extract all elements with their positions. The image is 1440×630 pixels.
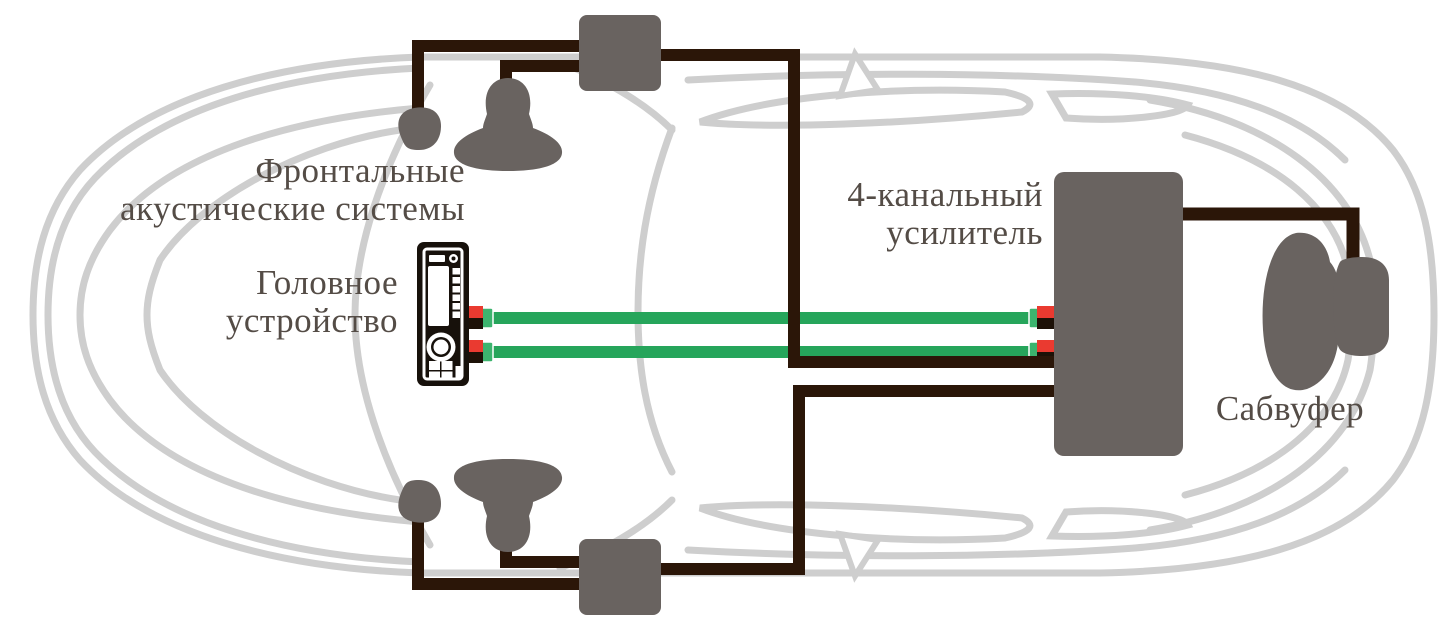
rca-cables: [463, 306, 1057, 363]
head-unit-display: [428, 266, 449, 326]
head-unit-label: Головное устройство: [226, 264, 398, 340]
crossover-icon-top: [579, 15, 661, 91]
rca-cable-1: [492, 312, 1032, 324]
front-speakers-label: Фронтальные акустические системы: [120, 152, 465, 228]
head-unit-label-line2: устройство: [226, 302, 398, 340]
subwoofer-magnet: [1333, 257, 1389, 356]
tweeter-icon-bottom: [398, 480, 441, 523]
head-unit-knob: [434, 340, 449, 355]
roofline-bottom: [688, 548, 1135, 556]
front-speakers-label-line1: Фронтальные: [120, 152, 465, 190]
midrange-speaker-icon-bottom: [454, 459, 562, 552]
windshield-arc: [638, 128, 672, 472]
amplifier-label-line1: 4-канальный: [847, 176, 1043, 214]
head-unit-label-line1: Головное: [226, 264, 398, 302]
head-unit-eject-button: [456, 366, 463, 379]
wiring-diagram: Фронтальные акустические системы Головно…: [0, 0, 1440, 630]
midrange-speaker-icon-top: [454, 78, 562, 171]
subwoofer-label-line1: Сабвуфер: [1140, 390, 1440, 428]
subwoofer-cone: [1263, 233, 1343, 390]
front-speakers-label-line2: акустические системы: [120, 190, 465, 228]
crossover-icon-bottom: [579, 539, 661, 615]
amplifier-label-line2: усилитель: [847, 214, 1043, 252]
diagram-canvas: [0, 0, 1440, 630]
side-window-front-bottom: [700, 505, 1030, 540]
head-unit-power-dot: [452, 257, 456, 261]
roofline-top: [688, 74, 1135, 82]
subwoofer-label: Сабвуфер: [1140, 390, 1440, 428]
side-window-front-top: [700, 90, 1030, 125]
amplifier-label: 4-канальный усилитель: [847, 176, 1043, 252]
tweeter-icon-top: [398, 107, 441, 150]
head-unit-icon: [417, 242, 469, 386]
head-unit-slot: [429, 255, 445, 262]
